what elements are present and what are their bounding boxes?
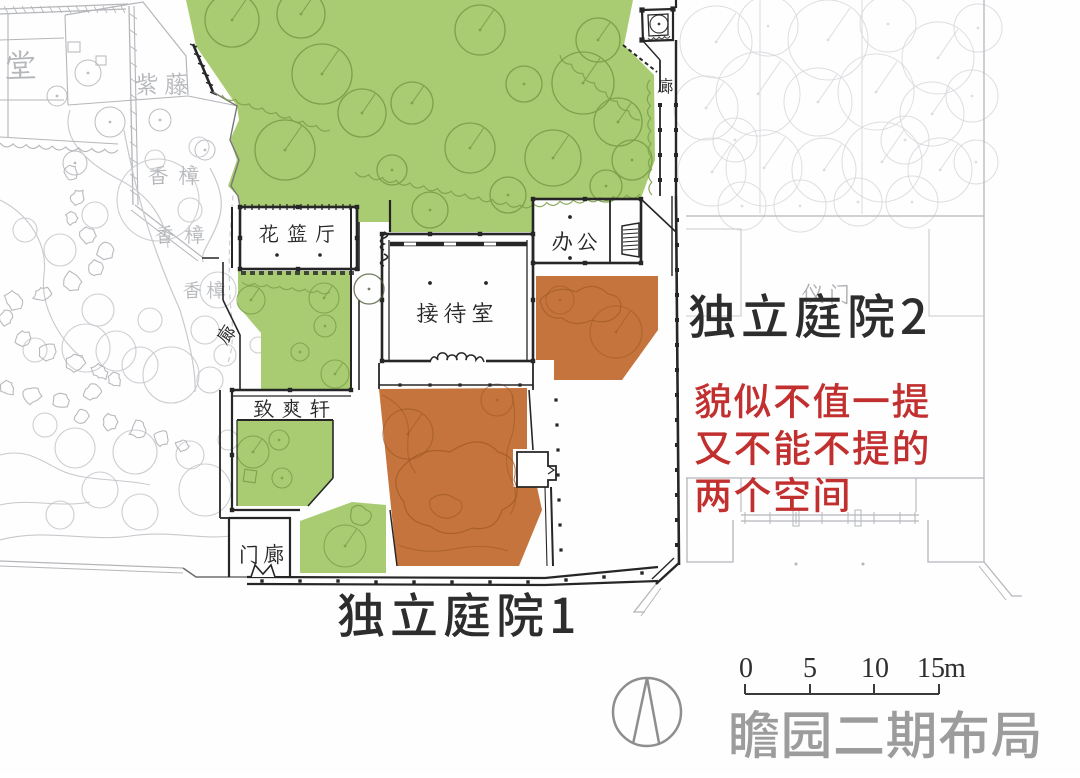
svg-text:0: 0 — [739, 653, 753, 684]
svg-text:15: 15 — [917, 653, 945, 684]
svg-text:m: m — [944, 653, 966, 684]
svg-text:5: 5 — [803, 653, 817, 684]
svg-text:10: 10 — [861, 653, 889, 684]
